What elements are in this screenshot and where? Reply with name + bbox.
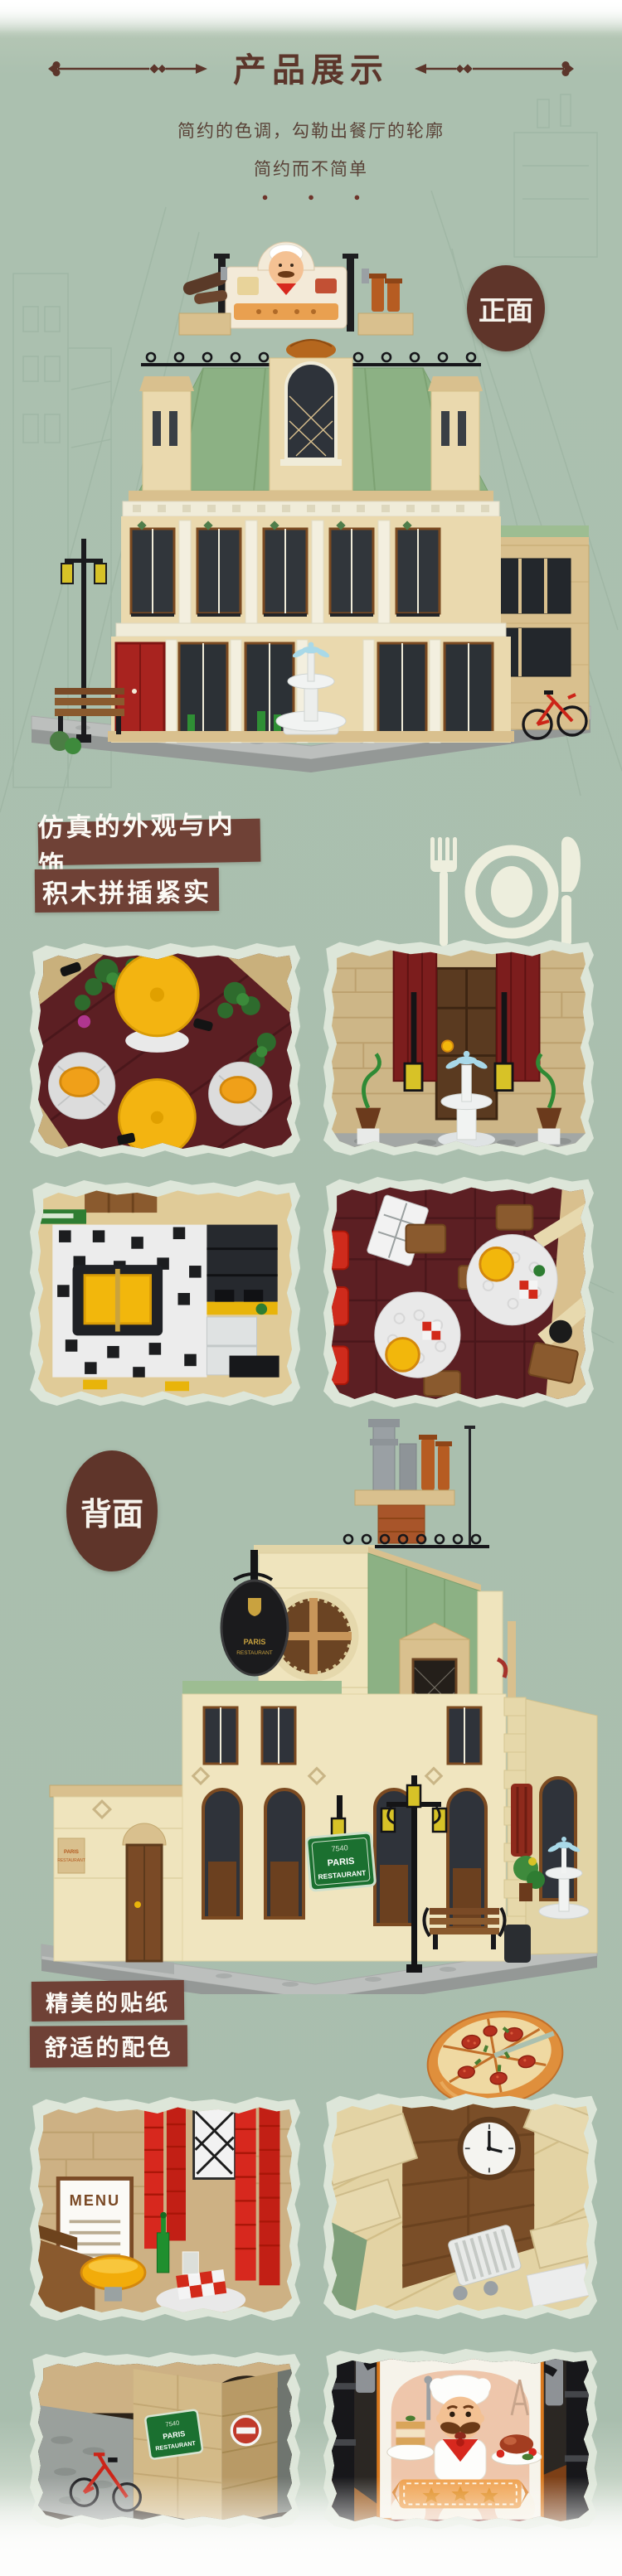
roof-chimneys bbox=[340, 1419, 489, 1547]
back-view-photo: PARIS RESTAURANT PARIS RESTAURANT bbox=[17, 1414, 605, 1994]
street-sign: 7540 PARIS RESTAURANT bbox=[145, 2409, 203, 2459]
product-display-page: 产品展示 简约的色调，勾勒出餐厅的轮廓 简约而不简单 ● ● ● 正面 bbox=[0, 0, 622, 2576]
cutlery-icon bbox=[419, 834, 585, 950]
street-corner-bicycle-photo: 7540 PARIS RESTAURANT bbox=[30, 2352, 300, 2528]
sign-board bbox=[378, 2357, 542, 2521]
title-flourish-right-icon bbox=[411, 60, 574, 78]
feature2-line2-label: 舒适的配色 bbox=[44, 2029, 173, 2063]
feature1-line2-label: 积木拼插紧实 bbox=[42, 871, 211, 910]
top-fade bbox=[0, 0, 622, 38]
feature2-line1-label: 精美的贴纸 bbox=[46, 1984, 170, 2018]
annex-sign-line2: RESTAURANT bbox=[57, 1858, 85, 1863]
feature1-line1-box: 仿真的外观与内饰 bbox=[38, 819, 261, 866]
menu-corner-photo: MENU bbox=[30, 2097, 300, 2321]
dining-room-photo bbox=[323, 1177, 594, 1407]
chef-signboard-photo bbox=[323, 2349, 597, 2530]
divider-dots: ● ● ● bbox=[0, 191, 622, 203]
feature2-line1-box: 精美的贴纸 bbox=[32, 1980, 184, 2022]
street-sign-number: 7540 bbox=[331, 1843, 348, 1853]
entrance-fountain-photo bbox=[323, 940, 594, 1155]
wall-clock bbox=[460, 2119, 518, 2177]
street-sign: 7540 PARIS RESTAURANT bbox=[306, 1833, 375, 1891]
menu-sign-label: MENU bbox=[70, 2191, 120, 2209]
kitchen-interior-photo bbox=[30, 1180, 300, 1406]
annex-sign-line1: PARIS bbox=[64, 1850, 79, 1855]
center-dormer bbox=[270, 340, 352, 491]
oval-sign-line1: PARIS bbox=[244, 1638, 266, 1646]
clock-wall-photo bbox=[323, 2094, 597, 2319]
subtitle-line-2: 简约而不简单 bbox=[0, 156, 622, 181]
feature1-line2-box: 积木拼插紧实 bbox=[35, 868, 219, 913]
star-banner bbox=[392, 2479, 529, 2508]
feature2-line2-box: 舒适的配色 bbox=[30, 2025, 187, 2067]
oval-sign-line2: RESTAURANT bbox=[236, 1650, 273, 1656]
rooftop-chef-sign bbox=[179, 242, 413, 335]
back-annex: PARIS RESTAURANT bbox=[50, 1785, 184, 1961]
subtitle-line-1: 简约的色调，勾勒出餐厅的轮廓 bbox=[0, 118, 622, 143]
no-entry-sign bbox=[231, 2416, 260, 2444]
rooftop-terrace-photo bbox=[30, 943, 300, 1157]
front-view-photo bbox=[17, 234, 605, 781]
